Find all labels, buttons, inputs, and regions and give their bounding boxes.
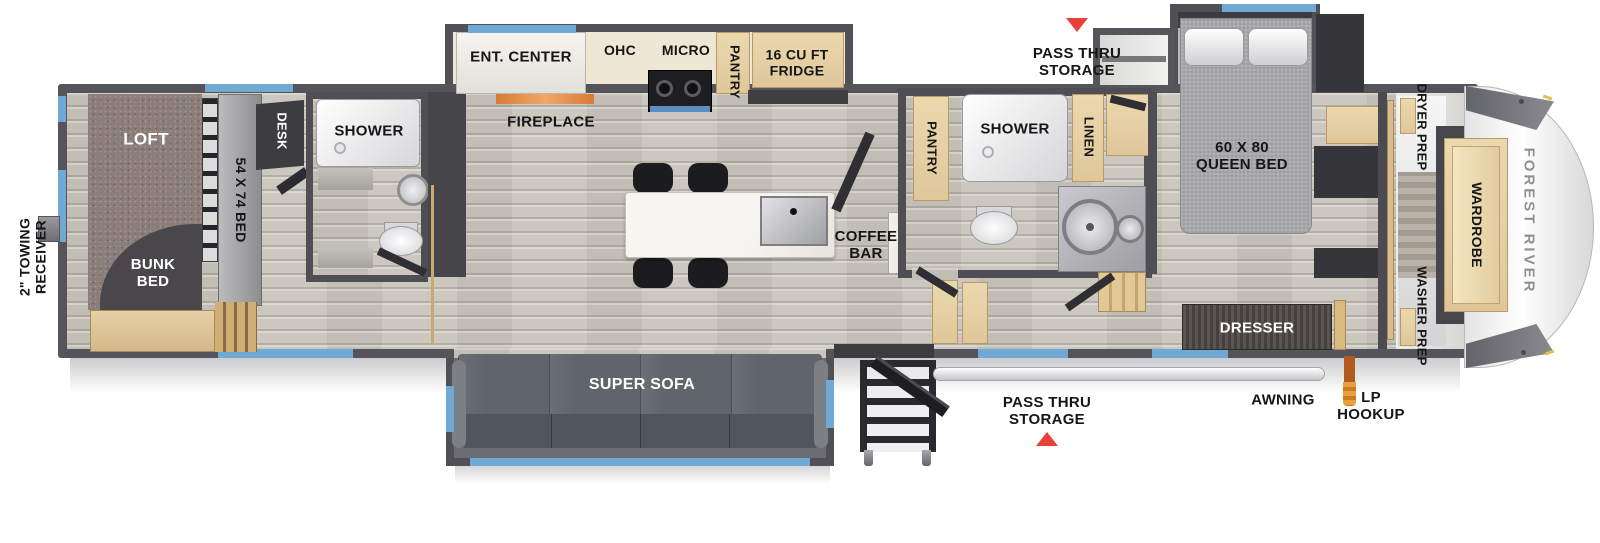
window: [470, 458, 810, 466]
entry-landing: [834, 344, 934, 358]
fireplace-unit: [496, 94, 594, 104]
towing-receiver-label: 2" TOWING RECEIVER: [17, 196, 48, 318]
sink-basin-small: [1116, 215, 1144, 243]
window: [468, 25, 576, 33]
bunk-shower-label: SHOWER: [334, 124, 403, 141]
nightstand: [1314, 248, 1380, 278]
bedroom-wall: [1148, 92, 1157, 274]
fridge-label: 16 CU FT FRIDGE: [757, 47, 837, 78]
ent-center-label: ENT. CENTER: [470, 50, 572, 67]
burner: [684, 80, 701, 97]
brand-label: FOREST RIVER: [1520, 148, 1537, 295]
stool: [688, 163, 728, 193]
shower-drain: [982, 146, 994, 158]
wardrobe-label: WARDROBE: [1468, 182, 1484, 268]
loft-label: LOFT: [123, 129, 169, 148]
step-slats: [215, 302, 257, 352]
micro-label: MICRO: [662, 43, 710, 59]
arrow-down-icon: [1066, 18, 1088, 32]
bedroom-cabinet-top: [1316, 14, 1364, 92]
dresser-label: DRESSER: [1220, 321, 1295, 338]
loft-ladder: [202, 98, 218, 262]
bunk-bed-size-label: 54 X 74 BED: [232, 157, 248, 242]
ohc-label: OHC: [604, 43, 636, 59]
pillow: [1248, 28, 1308, 66]
closet-wall: [1378, 92, 1387, 349]
kitchen-pantry-label: PANTRY: [727, 45, 742, 99]
sink-faucet: [790, 208, 797, 215]
washer-prep-label: WASHER PREP: [1414, 266, 1429, 365]
lp-hookup-label: LP HOOKUP: [1336, 390, 1406, 424]
coffee-bar-label: COFFEE BAR: [819, 229, 914, 263]
overhead-cabinet: [1326, 106, 1384, 144]
bath-pantry-label: PANTRY: [924, 121, 939, 175]
queen-bed-label: 60 X 80 QUEEN BED: [1187, 140, 1297, 174]
window: [446, 386, 454, 432]
burner: [656, 80, 673, 97]
stool: [633, 258, 673, 288]
shower-drain: [334, 142, 346, 154]
linen-label: LINEN: [1081, 117, 1096, 158]
bath-shower-label: SHOWER: [980, 122, 1049, 139]
toilet: [970, 211, 1018, 245]
pass-thru-bottom-label: PASS THRU STORAGE: [982, 395, 1112, 429]
slide-shadow: [455, 464, 830, 484]
awning-tube: [933, 367, 1325, 381]
window: [826, 380, 834, 428]
oven-handle: [650, 106, 710, 112]
sofa-armrest: [452, 360, 466, 448]
sofa-seat: [462, 414, 818, 448]
nightstand: [1314, 146, 1380, 198]
stool: [633, 163, 673, 193]
window: [1222, 4, 1316, 12]
basin-drain: [1086, 223, 1094, 231]
cap-rivet: [1519, 99, 1524, 104]
window: [1152, 349, 1228, 358]
cap-marker-light: [1543, 95, 1552, 101]
window: [978, 349, 1068, 358]
kitchen-counter: [748, 90, 848, 104]
storage-steps: [90, 310, 215, 352]
bath-sink: [397, 174, 429, 206]
bath-bench: [318, 248, 373, 268]
super-sofa-label: SUPER SOFA: [589, 376, 695, 394]
window: [58, 96, 66, 122]
cap-rivet: [1521, 350, 1526, 355]
awning-label: AWNING: [1251, 393, 1314, 410]
lp-hookup-valve: [1344, 356, 1355, 382]
pass-thru-top-label: PASS THRU STORAGE: [1012, 46, 1142, 80]
bath-counter: [318, 168, 373, 190]
dresser-side-panel: [1334, 300, 1346, 350]
dryer-prep-label: DRYER PREP: [1414, 83, 1429, 170]
stool: [688, 258, 728, 288]
window: [205, 84, 293, 92]
step-foot: [864, 450, 873, 466]
pillow: [1184, 28, 1244, 66]
bunk-bed-label: BUNK BED: [121, 257, 185, 291]
closet-sliding-door: [1387, 100, 1394, 340]
step-foot: [922, 450, 931, 466]
desk-label: DESK: [274, 112, 289, 149]
floorplan-canvas: 2" TOWING RECEIVER LOFT BUNK BED 54 X 74…: [0, 0, 1600, 543]
lower-cabinet: [962, 282, 988, 344]
sliding-door-track: [431, 185, 434, 345]
arrow-up-icon: [1036, 432, 1058, 446]
fireplace-label: FIREPLACE: [507, 115, 595, 132]
